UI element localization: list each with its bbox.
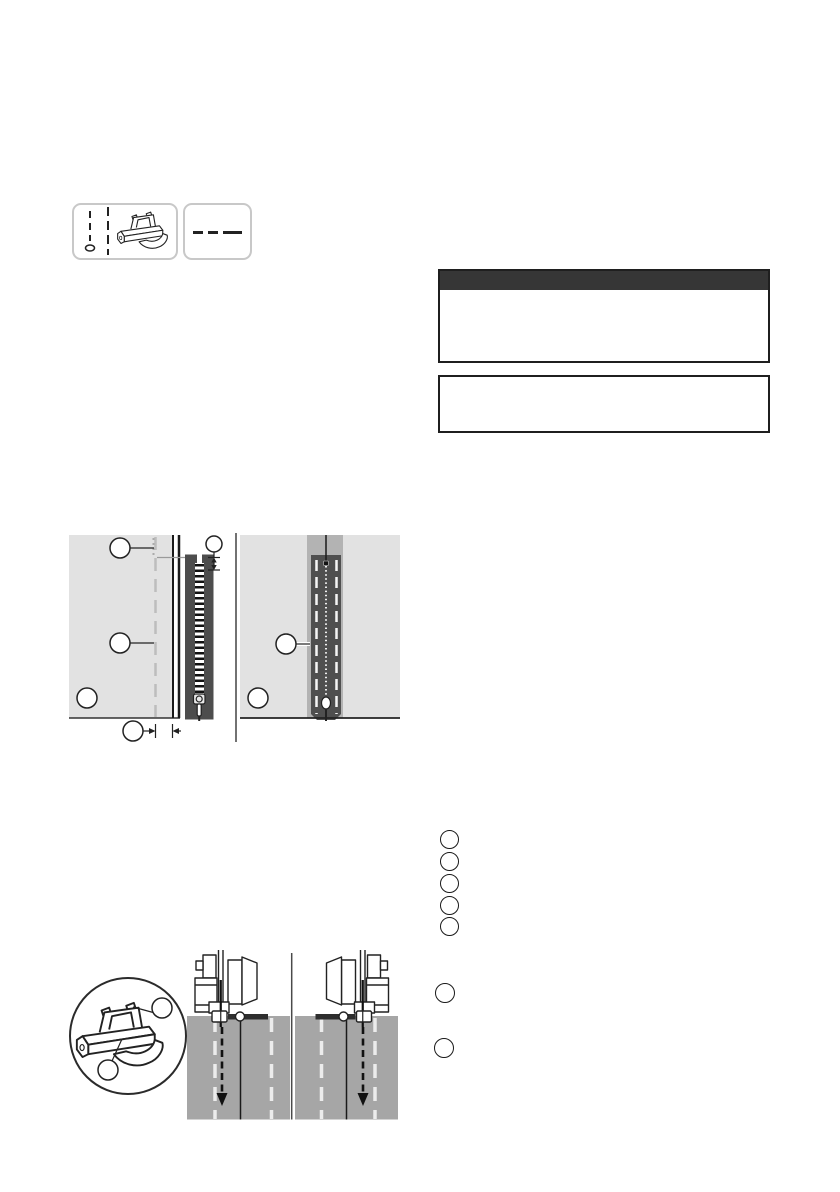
- callout-circle-5: [123, 721, 143, 741]
- sewing-right-panel: [295, 950, 398, 1120]
- stitch-dash: [208, 231, 218, 234]
- legend-circle-3: [440, 874, 459, 893]
- stitch-dash: [193, 231, 203, 234]
- callout-circle-6: [276, 634, 296, 654]
- legend-circle-4: [440, 896, 459, 915]
- machine-head-left: [195, 950, 268, 1027]
- needle-position-and-foot-icon: [74, 205, 176, 258]
- bartack-mark: [86, 245, 95, 251]
- caution-header-bar: [440, 271, 768, 290]
- machine-head-right: [316, 950, 389, 1027]
- callout-circle-1: [110, 538, 130, 558]
- detail-callout-circle-2: [98, 1060, 118, 1080]
- fabric-panel: [187, 1016, 290, 1120]
- detail-callout-circle-1: [152, 998, 172, 1018]
- stitch-dash: [223, 231, 242, 234]
- legend-circle-5: [440, 917, 459, 936]
- figure-zipper-sewing: [60, 945, 420, 1125]
- callout-circle-4: [77, 688, 97, 708]
- callout-circle-7: [248, 688, 268, 708]
- zipper-top-stop: [324, 561, 329, 566]
- sewing-left-panel: [187, 950, 290, 1120]
- legend-circle-1: [440, 830, 459, 849]
- presser-foot-info-box: [72, 203, 178, 260]
- stitch-pattern-box: [183, 203, 252, 260]
- note-box: [438, 375, 770, 433]
- callout-circle-2: [206, 536, 222, 552]
- basting-left-panel: [69, 535, 222, 741]
- caution-box: [438, 269, 770, 363]
- legend-circle-2: [440, 852, 459, 871]
- foot-detail-inset: [70, 978, 186, 1094]
- step-circle-1: [435, 983, 455, 1003]
- manual-page: [0, 0, 840, 1192]
- zipper: [185, 555, 214, 722]
- callout-circle-3: [110, 633, 130, 653]
- zipper-foot-icon: [118, 212, 168, 248]
- stitch-pattern-dashes-icon: [185, 205, 250, 258]
- caution-body: [440, 290, 768, 361]
- zipper-pull-tab: [197, 704, 201, 716]
- figure-zipper-basting: [60, 528, 410, 746]
- step-circle-2: [434, 1038, 454, 1058]
- zipper-pull: [322, 697, 331, 709]
- basting-right-panel: [240, 535, 400, 721]
